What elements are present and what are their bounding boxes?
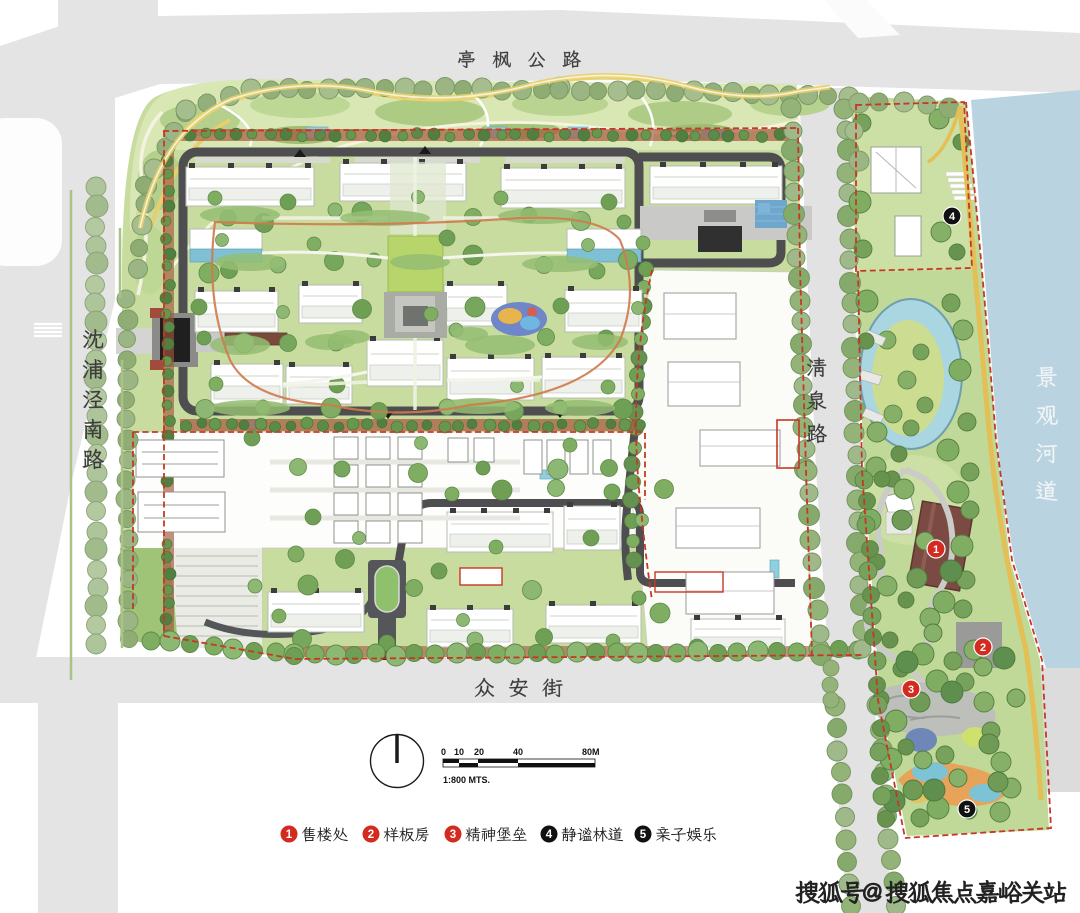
svg-text:3: 3	[908, 684, 914, 696]
svg-text:5: 5	[640, 829, 647, 841]
svg-text:1:800 MTS.: 1:800 MTS.	[443, 775, 490, 785]
svg-text:40: 40	[513, 747, 523, 757]
svg-text:1: 1	[286, 829, 293, 841]
svg-text:1: 1	[933, 544, 939, 556]
svg-text:80M: 80M	[582, 747, 600, 757]
svg-text:2: 2	[368, 829, 374, 841]
svg-text:3: 3	[450, 829, 456, 841]
svg-text:2: 2	[980, 642, 986, 654]
svg-text:20: 20	[474, 747, 484, 757]
svg-text:4: 4	[949, 211, 956, 223]
svg-text:0: 0	[441, 747, 446, 757]
svg-text:10: 10	[454, 747, 464, 757]
svg-text:4: 4	[546, 829, 553, 841]
svg-text:5: 5	[964, 804, 970, 816]
